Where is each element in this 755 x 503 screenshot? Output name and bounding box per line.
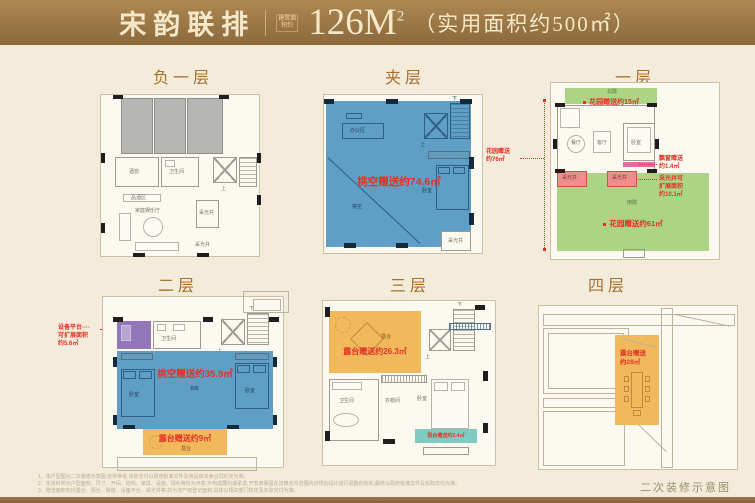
radiator-hatch [449, 323, 491, 330]
wall-segment [344, 243, 356, 248]
balcony-gift-text: 阳台赠送约2.4㎡ [415, 433, 477, 440]
room-label: 采光井 [562, 176, 577, 181]
bottom-bar [0, 497, 755, 503]
stairs-icon [450, 103, 470, 139]
roof-outline [543, 411, 625, 466]
up-label: 上 [420, 143, 425, 148]
parking-space [121, 98, 153, 154]
bay-note-l2: 约1.4㎡ [659, 164, 679, 170]
room-label: 卫生间 [161, 337, 176, 342]
terrace-chair [645, 396, 650, 402]
header-bar: 宋韵联排 建筑面积约 126M2 （实用面积约500㎡） [0, 0, 755, 45]
radiator-hatch [428, 151, 470, 159]
bay-window-note: 飘窗赠送 约1.4㎡ [659, 155, 683, 171]
pillow [438, 167, 450, 174]
wall-segment [273, 415, 277, 425]
terrace-gift-text: 露台赠送约9㎡ [143, 434, 227, 445]
wall-segment [123, 425, 135, 429]
floor-b1-title: 负一层 [88, 64, 278, 88]
roof-outline [548, 333, 624, 389]
roof-outline [661, 308, 673, 468]
room-label: 卧室 [422, 189, 432, 194]
equipment-fixture [121, 325, 131, 341]
wall-segment [647, 103, 657, 107]
up-label: 上 [221, 187, 226, 192]
terrace-chair [645, 386, 650, 392]
floor-f2: 二层 设备平台···· 可扩展面积 约5.6㎡ 卫生间 下 上 [58, 266, 298, 478]
terrace-gift-l1: 露台赠送 [620, 350, 646, 357]
room-label: 酒窖 [129, 170, 139, 175]
radiator-hatch [381, 375, 427, 383]
disclaimer-line: 3、赠送面积包括露台、阳台、飘窗、设备平台、采光井等,均为非产权登记面积,具体以… [38, 488, 638, 495]
leader-dot [603, 223, 606, 226]
wall-segment [101, 223, 105, 233]
platform-note-l3: 约5.6㎡ [58, 341, 78, 347]
terrace-chair [645, 376, 650, 382]
leader-line [639, 164, 657, 165]
room-label: 卧室 [417, 397, 427, 402]
room-label: 卫生间 [169, 170, 184, 175]
wall-segment [113, 357, 117, 367]
wall-segment [324, 99, 334, 104]
wall-segment [383, 439, 395, 444]
platform-note-l1: 设备平台···· [58, 325, 90, 331]
wall-segment [396, 243, 408, 248]
room-label: 卫生间 [339, 399, 354, 404]
wall-segment [257, 195, 261, 205]
terrace-gift-text: 露台赠送 约28㎡ [620, 350, 646, 368]
well-note-l1: 采光井可 [659, 176, 683, 182]
elevator-icon [429, 329, 451, 351]
disclaimer-notes: 1、本户型图为二次装修示意图,仅供参考,实际交付以政府批准文件及商品房买卖合同约… [38, 474, 638, 495]
sofa [135, 242, 179, 251]
wall-segment [113, 415, 117, 425]
elevator-icon [424, 113, 448, 139]
room-label: 办公区 [350, 129, 365, 134]
side-garden-l2: 约76㎡ [486, 157, 505, 163]
sheet-caption: 二次装修示意图 [640, 479, 731, 495]
floor-f3-plan: 露台 露台赠送约26.3㎡ 下 上 卫生间 衣帽间 卧室 阳台赠送约2.4㎡ [322, 300, 496, 466]
terrace-table [631, 372, 643, 408]
wall-segment [655, 139, 659, 149]
room-label: 家庭娱乐厅 [135, 209, 160, 214]
wall-segment [101, 153, 105, 163]
void-gift-text: 挑空赠送约35.9㎡ [117, 369, 273, 382]
wall-segment [325, 431, 330, 441]
floorplan-sheet: 宋韵联排 建筑面积约 126M2 （实用面积约500㎡） 负一层 酒窖 卫生间 [0, 0, 755, 503]
sofa [119, 213, 131, 241]
plant-icon [335, 317, 351, 333]
room-label: 北院 [607, 90, 617, 95]
well-note-l2: 扩展面积 [659, 184, 683, 190]
wall-segment [197, 253, 209, 257]
roof-outline [253, 299, 281, 311]
down-label: 下 [249, 307, 254, 312]
wall-segment [203, 317, 213, 322]
room-label: 卧室 [631, 141, 641, 146]
room-label: 挑空 [352, 205, 362, 210]
down-label: 下 [457, 303, 462, 308]
pillow [434, 382, 448, 391]
bay-note-l1: 飘窗赠送 [659, 156, 683, 162]
roof-outline [117, 457, 257, 471]
disclaimer-line: 2、本资料所示户型面积、尺寸、开间、结构、家具、设施、绿化等仅为示意,不构成要约… [38, 481, 638, 488]
room-label: 采光井 [612, 176, 627, 181]
wall-segment [325, 307, 330, 317]
leader-dot [543, 99, 546, 102]
brand-title: 宋韵联排 [119, 3, 255, 42]
room-label: 卧室 [245, 389, 255, 394]
floor-f4-plan: 露台赠送 约28㎡ [538, 305, 738, 470]
floor-b1: 负一层 酒窖 卫生间 上 品酒区 家庭娱乐厅 [88, 58, 278, 264]
room-label: 品酒区 [131, 196, 146, 201]
wall-segment [219, 95, 229, 99]
sink-fixture [165, 160, 175, 167]
room-label: 衣帽间 [385, 399, 400, 404]
room-label: 南院 [627, 201, 637, 206]
radiator-hatch [121, 353, 153, 360]
room-label: 采光井 [448, 239, 463, 244]
wall-segment [483, 423, 488, 433]
void-gift-text: 挑空赠送约74.6㎡ [324, 175, 474, 189]
floor-f1-plan: 北院 花园赠送约15㎡ 餐厅 客厅 卧室 采光井 采光井 南院 花园赠送约61㎡… [550, 82, 720, 260]
wall-segment [555, 169, 565, 173]
terrace-chair [624, 386, 629, 392]
cabinet [346, 113, 362, 119]
radiator-hatch [235, 353, 269, 360]
pillow [453, 167, 465, 174]
room-label: 露台 [181, 447, 191, 452]
pillow [451, 382, 465, 391]
lightwell-expand-note: 采光井可 扩展面积 约10.1㎡ [659, 175, 683, 199]
floor-f4: 四层 露台赠送 约28㎡ [518, 266, 755, 478]
room-label: 书房 [189, 387, 199, 392]
wall-segment [269, 317, 279, 322]
leader-line [638, 179, 657, 180]
wall-segment [475, 305, 485, 310]
room-label: 客厅 [597, 141, 607, 146]
area-number: 126M [308, 2, 396, 43]
garden-bottom-gift: 花园赠送约61㎡ [557, 219, 709, 229]
wall-segment [483, 371, 488, 381]
leader-dot [543, 248, 546, 251]
floor-f4-title: 四层 [548, 272, 668, 296]
wall-segment [227, 425, 239, 429]
terrace-chair [633, 410, 641, 416]
room-label: 采光井 [195, 243, 210, 248]
entry-steps [423, 447, 469, 455]
floor-f2-plan: 卫生间 下 上 卧室 卧室 书房 挑空赠送约35.9㎡ 露台赠送约9㎡ 露台 [102, 296, 284, 468]
room-label: 卧室 [129, 393, 139, 398]
wall-segment [273, 357, 277, 367]
floor-b1-plan: 酒窖 卫生间 上 品酒区 家庭娱乐厅 采光井 采光井 [100, 94, 260, 257]
terrace-gift-text: 露台赠送约26.3㎡ [329, 347, 421, 358]
floor-f1: 一层 花园赠送 约76㎡ 北院 花园赠送约15㎡ 餐厅 客厅 卧室 采光井 [468, 58, 755, 268]
room-label: 餐厅 [571, 141, 581, 146]
parking-space [154, 98, 186, 154]
down-label: 下 [452, 97, 457, 102]
leader-line [544, 100, 545, 250]
header-divider [265, 10, 266, 36]
area-value: 126M2 [308, 4, 404, 41]
wall-segment [386, 99, 398, 104]
floor-f3-title: 三层 [310, 272, 510, 296]
parking-space [187, 98, 223, 154]
round-table [143, 217, 163, 237]
wall-segment [257, 153, 261, 163]
disclaimer-line: 1、本户型图为二次装修示意图,仅供参考,实际交付以政府批准文件及商品房买卖合同约… [38, 474, 638, 481]
area-sup: 2 [397, 9, 405, 25]
stairs-icon [247, 313, 269, 345]
room-label: 露台 [381, 335, 391, 340]
terrace-gift-l2: 约28㎡ [620, 359, 640, 366]
terrace-chair [624, 396, 629, 402]
wall-segment [113, 95, 123, 99]
platform-note: 设备平台···· 可扩展面积 约5.6㎡ [58, 324, 90, 348]
area-tag-seal: 建筑面积约 [276, 14, 298, 32]
vanity-fixture [332, 382, 362, 390]
wall-segment [113, 317, 123, 322]
toilet-fixture [157, 324, 166, 331]
wall-segment [133, 253, 145, 257]
well-note-l3: 约10.1㎡ [659, 192, 683, 198]
garden-bottom-text: 花园赠送约61㎡ [609, 219, 662, 228]
entry-steps [623, 249, 645, 258]
wall-segment [647, 169, 657, 173]
stairs-icon [239, 157, 257, 187]
terrace-chair [624, 376, 629, 382]
elevator-icon [221, 319, 245, 345]
up-label: 上 [425, 355, 430, 360]
bathtub [333, 413, 359, 427]
side-garden-note: 花园赠送 约76㎡ [486, 148, 510, 164]
room-label: 采光井 [199, 211, 214, 216]
kitchen-counter [560, 108, 580, 128]
side-garden-l1: 花园赠送 [486, 149, 510, 155]
sink-fixture [173, 324, 185, 331]
wall-segment [555, 103, 565, 107]
elevator-icon [213, 157, 237, 183]
platform-note-l2: 可扩展面积 [58, 333, 88, 339]
leader-line [520, 158, 544, 159]
stairs-icon [453, 309, 475, 351]
leader-dot [583, 101, 586, 104]
floor-mezz-plan: 办公区 下 上 卧室 挑空 采光井 挑空赠送约74.6㎡ [323, 94, 483, 254]
wall-segment [553, 139, 557, 149]
floor-f3: 三层 露台 露台赠送约26.3㎡ 下 上 卫生间 衣帽间 卧室 阳台赠送约2.4… [310, 266, 510, 478]
usable-area: （实用面积约500㎡） [414, 8, 636, 38]
